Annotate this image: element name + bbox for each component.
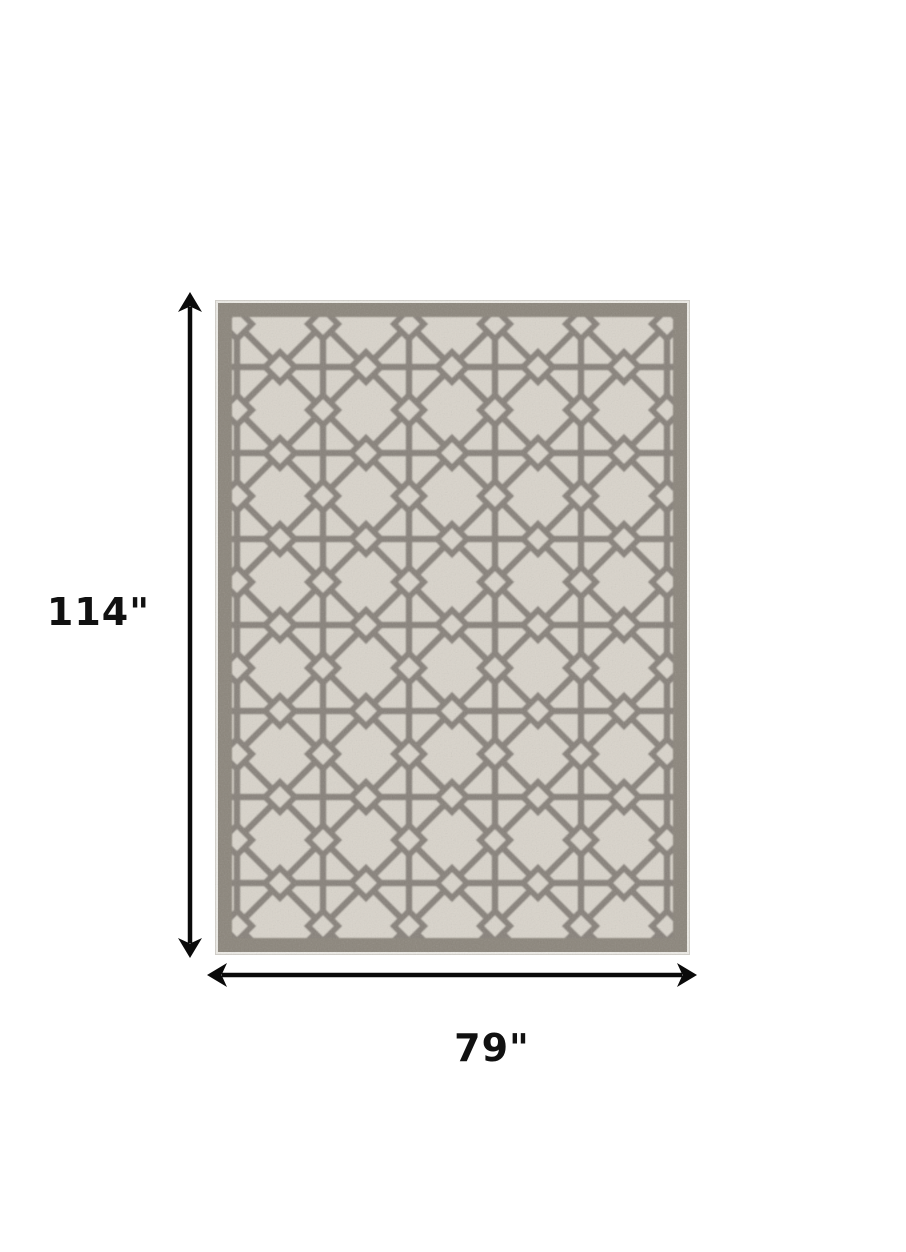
- vertical-dimension-arrow: [173, 291, 207, 959]
- page: 114" 79": [0, 0, 906, 1252]
- rug-grain-texture: [215, 300, 690, 955]
- width-dimension-label: 79": [432, 1028, 552, 1070]
- rug-graphic: [215, 300, 690, 955]
- height-dimension-label: 114": [40, 592, 150, 634]
- rug-image: [215, 300, 690, 955]
- horizontal-dimension-arrow: [206, 958, 698, 992]
